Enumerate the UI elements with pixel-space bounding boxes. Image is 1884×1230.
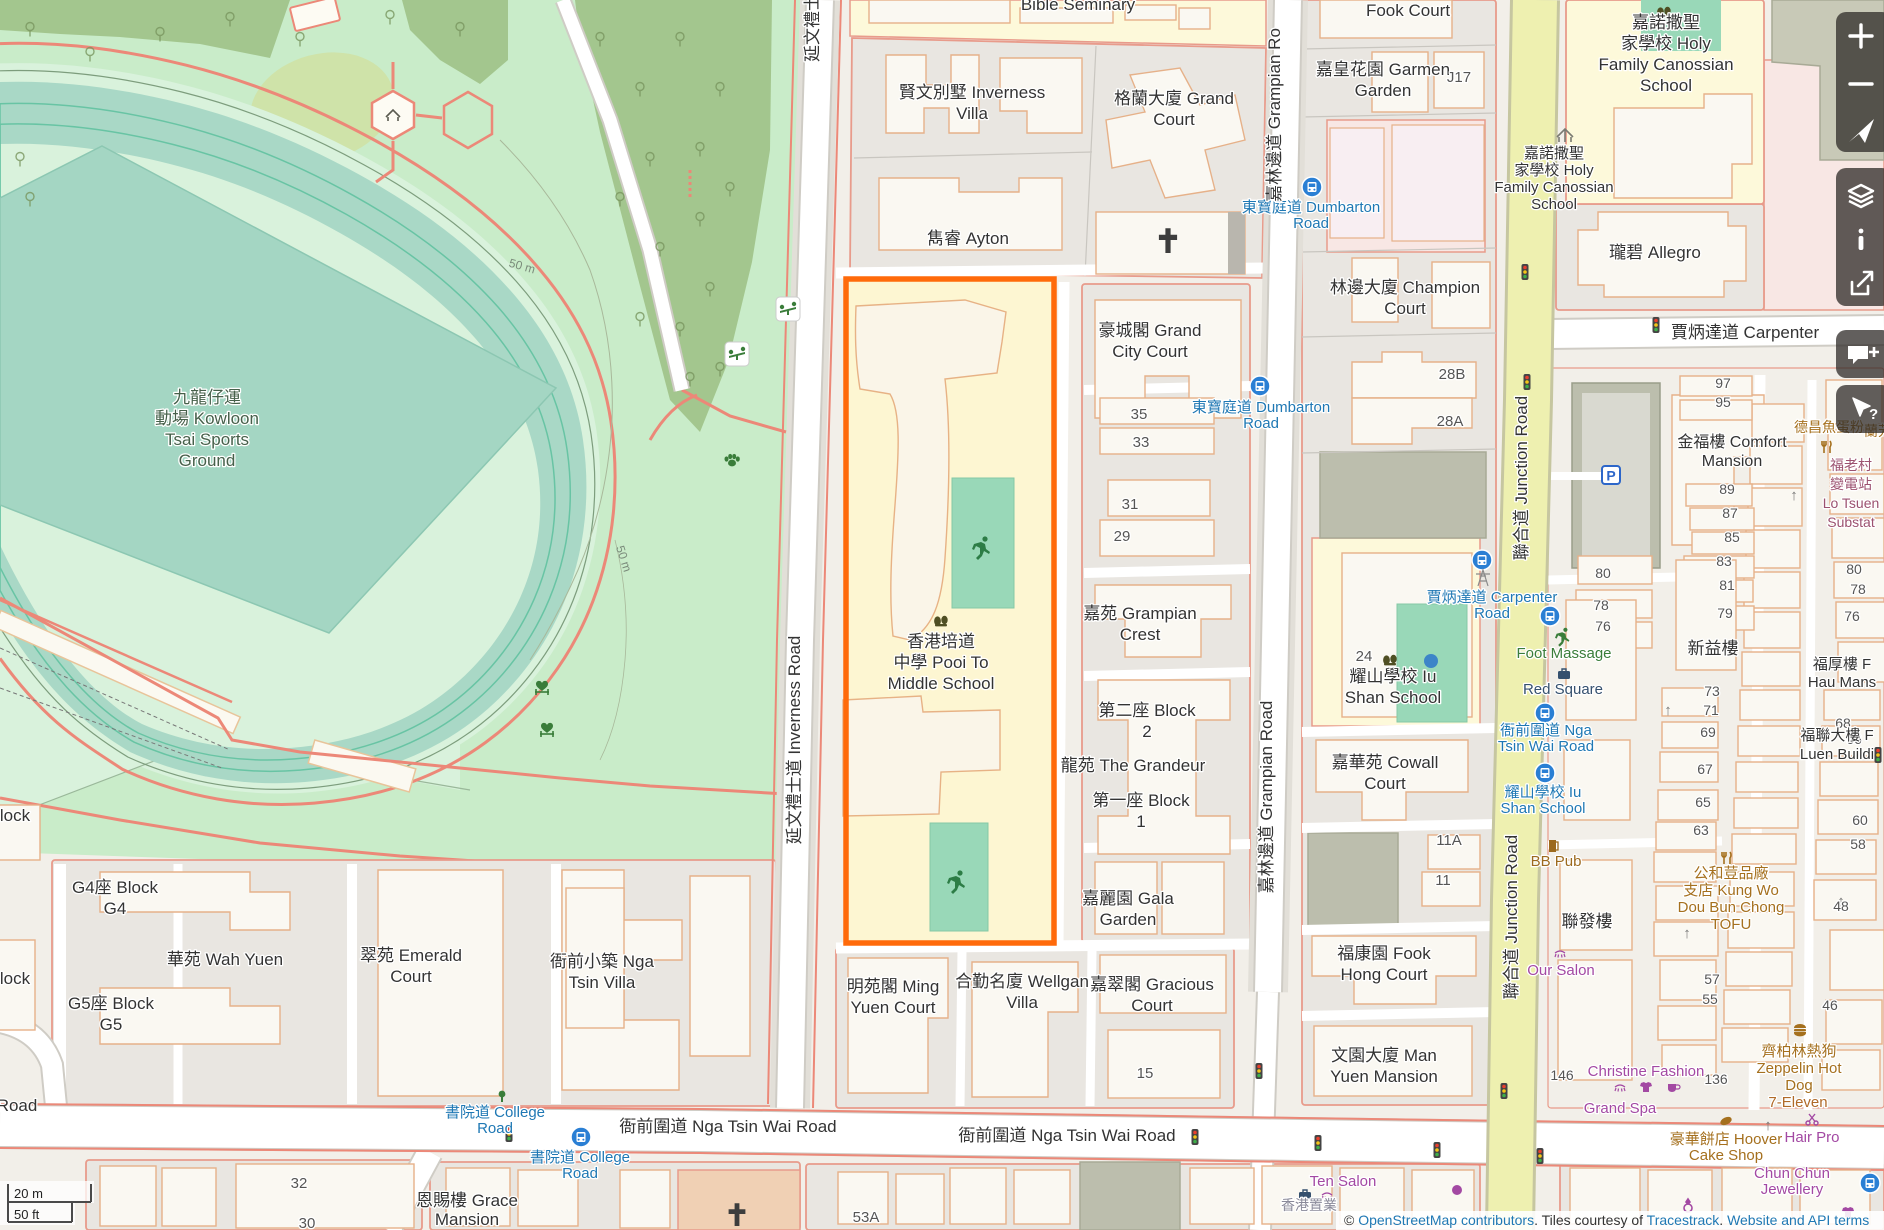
svg-text:賢文別墅 Inverness: 賢文別墅 Inverness xyxy=(899,83,1045,102)
svg-text:Ground: Ground xyxy=(179,451,236,470)
svg-text:Tsai Sports: Tsai Sports xyxy=(165,430,249,449)
svg-text:Tsin Wai Road: Tsin Wai Road xyxy=(1498,738,1594,755)
svg-text:58: 58 xyxy=(1850,836,1866,852)
svg-text:Court: Court xyxy=(1153,110,1195,129)
svg-text:明苑閣 Ming: 明苑閣 Ming xyxy=(847,977,940,996)
svg-text:嘉林邊道 Grampian Ro: 嘉林邊道 Grampian Ro xyxy=(1265,28,1284,202)
svg-text:Lo Tsuen: Lo Tsuen xyxy=(1823,495,1880,511)
svg-text:Family Canossian: Family Canossian xyxy=(1494,179,1613,196)
svg-text:78: 78 xyxy=(1593,597,1609,613)
svg-text:48: 48 xyxy=(1833,898,1849,914)
svg-text:136: 136 xyxy=(1704,1071,1728,1087)
svg-text:76: 76 xyxy=(1595,618,1611,634)
svg-text:69: 69 xyxy=(1700,724,1716,740)
svg-text:29: 29 xyxy=(1114,528,1131,545)
svg-text:97: 97 xyxy=(1715,375,1731,391)
svg-text:↑: ↑ xyxy=(1664,702,1672,719)
svg-text:73: 73 xyxy=(1704,683,1720,699)
svg-text:55: 55 xyxy=(1702,991,1718,1007)
svg-text:合勤名廈 Wellgan: 合勤名廈 Wellgan xyxy=(955,972,1089,991)
svg-text:32: 32 xyxy=(291,1175,308,1192)
svg-text:衙前小築 Nga: 衙前小築 Nga xyxy=(550,952,654,971)
svg-text:福康園 Fook: 福康園 Fook xyxy=(1337,944,1431,963)
svg-text:嘉林邊道 Grampian Road: 嘉林邊道 Grampian Road xyxy=(1257,701,1276,894)
svg-text:46: 46 xyxy=(1822,997,1838,1013)
svg-text:Road: Road xyxy=(1243,415,1279,432)
svg-text:賈炳達道 Carpenter: 賈炳達道 Carpenter xyxy=(1671,323,1820,342)
svg-text:Substat: Substat xyxy=(1827,514,1875,530)
svg-text:Our Salon: Our Salon xyxy=(1527,962,1595,979)
svg-text:G5座 Block: G5座 Block xyxy=(68,994,154,1013)
svg-text:Court: Court xyxy=(390,967,432,986)
svg-text:嘉諾撒聖: 嘉諾撒聖 xyxy=(1524,145,1584,162)
svg-text:Road: Road xyxy=(562,1165,598,1182)
svg-text:金福樓 Comfort: 金福樓 Comfort xyxy=(1677,433,1787,451)
svg-text:28A: 28A xyxy=(1437,413,1464,430)
svg-text:15: 15 xyxy=(1137,1065,1154,1082)
svg-text:嘉諾撒聖: 嘉諾撒聖 xyxy=(1632,13,1700,32)
svg-text:嘉翠閣 Gracious: 嘉翠閣 Gracious xyxy=(1090,975,1214,994)
svg-text:33: 33 xyxy=(1133,434,1150,451)
svg-text:香港置業: 香港置業 xyxy=(1281,1197,1337,1213)
svg-text:嘉麗園 Gala: 嘉麗園 Gala xyxy=(1082,889,1174,908)
svg-text:83: 83 xyxy=(1716,553,1732,569)
svg-text:文園大廈 Man: 文園大廈 Man xyxy=(1331,1046,1437,1065)
svg-text:嘉華苑 Cowall: 嘉華苑 Cowall xyxy=(1332,753,1439,772)
svg-text:Hau Mans: Hau Mans xyxy=(1808,674,1876,691)
svg-text:Crest: Crest xyxy=(1120,625,1161,644)
svg-text:香港培道: 香港培道 xyxy=(907,632,975,651)
svg-text:Bible Seminary: Bible Seminary xyxy=(1021,0,1136,14)
svg-text:79: 79 xyxy=(1717,605,1733,621)
svg-text:Red Square: Red Square xyxy=(1523,681,1603,698)
svg-text:Christine Fashion: Christine Fashion xyxy=(1588,1063,1705,1080)
svg-text:7-Eleven: 7-Eleven xyxy=(1768,1094,1827,1111)
svg-text:家學校 Holy: 家學校 Holy xyxy=(1621,34,1711,53)
svg-text:76: 76 xyxy=(1844,608,1860,624)
svg-text:20 m: 20 m xyxy=(14,1186,43,1201)
svg-text:35: 35 xyxy=(1131,406,1148,423)
svg-text:Court: Court xyxy=(1131,996,1173,1015)
svg-text:Court: Court xyxy=(1364,774,1406,793)
svg-text:中學 Pooi To: 中學 Pooi To xyxy=(893,653,988,672)
svg-text:聯合道 Junction Road: 聯合道 Junction Road xyxy=(1512,396,1531,560)
svg-text:華苑 Wah Yuen: 華苑 Wah Yuen xyxy=(167,950,283,969)
svg-text:Hong Court: Hong Court xyxy=(1341,965,1428,984)
svg-text:雋睿 Ayton: 雋睿 Ayton xyxy=(927,229,1009,248)
svg-text:新益樓: 新益樓 xyxy=(1688,639,1739,658)
svg-text:延文禮士: 延文禮士 xyxy=(803,0,822,62)
svg-text:賈炳達道 Carpenter: 賈炳達道 Carpenter xyxy=(1427,589,1558,606)
svg-text:↑: ↑ xyxy=(1790,487,1798,504)
svg-text:28B: 28B xyxy=(1439,366,1466,383)
svg-text:第二座 Block: 第二座 Block xyxy=(1098,701,1196,720)
svg-text:豪華餅店 Hoover: 豪華餅店 Hoover xyxy=(1670,1130,1783,1148)
svg-text:57: 57 xyxy=(1704,971,1720,987)
svg-text:87: 87 xyxy=(1722,505,1738,521)
svg-text:東寶庭道 Dumbarton: 東寶庭道 Dumbarton xyxy=(1242,198,1380,216)
svg-text:J17: J17 xyxy=(1447,69,1471,86)
svg-text:65: 65 xyxy=(1695,794,1711,810)
svg-text:Yuen Court: Yuen Court xyxy=(850,998,935,1017)
svg-text:© OpenStreetMap contributors.: © OpenStreetMap contributors. Tiles cour… xyxy=(1344,1212,1869,1228)
svg-text:林邊大廈 Champion: 林邊大廈 Champion xyxy=(1330,278,1480,297)
svg-text:Shan School: Shan School xyxy=(1345,688,1441,707)
svg-text:City Court: City Court xyxy=(1112,342,1188,361)
svg-text:福聯大樓 F: 福聯大樓 F xyxy=(1800,727,1873,744)
svg-text:Luen Buildi: Luen Buildi xyxy=(1800,746,1874,763)
svg-text:Fook Court: Fook Court xyxy=(1366,1,1450,20)
svg-text:龍苑 The Grandeur: 龍苑 The Grandeur xyxy=(1061,756,1206,775)
svg-text:Dou Bun Chong: Dou Bun Chong xyxy=(1678,899,1785,916)
svg-text:BB Pub: BB Pub xyxy=(1531,853,1582,870)
svg-text:Middle School: Middle School xyxy=(888,674,995,693)
svg-text:P: P xyxy=(1606,468,1615,484)
svg-text:Mansion: Mansion xyxy=(435,1210,499,1229)
svg-text:福老村: 福老村 xyxy=(1830,457,1872,473)
svg-text:Chun Chun: Chun Chun xyxy=(1754,1165,1830,1182)
svg-text:53A: 53A xyxy=(853,1209,880,1226)
svg-text:Zeppelin Hot: Zeppelin Hot xyxy=(1756,1060,1842,1077)
svg-text:85: 85 xyxy=(1724,529,1740,545)
svg-text:Dog: Dog xyxy=(1785,1077,1813,1094)
svg-text:Villa: Villa xyxy=(956,104,988,123)
svg-text:G5: G5 xyxy=(100,1015,123,1034)
svg-text:67: 67 xyxy=(1697,761,1713,777)
svg-text:東寶庭道 Dumbarton: 東寶庭道 Dumbarton xyxy=(1192,398,1330,416)
svg-text:50 ft: 50 ft xyxy=(14,1207,40,1222)
svg-text:24: 24 xyxy=(1356,648,1373,665)
svg-text:Road: Road xyxy=(0,1096,37,1115)
svg-text:耀山學校 Iu: 耀山學校 Iu xyxy=(1350,667,1437,686)
svg-text:lock: lock xyxy=(0,969,31,988)
svg-text:格蘭大廈 Grand: 格蘭大廈 Grand xyxy=(1114,89,1234,108)
svg-text:lock: lock xyxy=(0,806,31,825)
svg-text:Road: Road xyxy=(1474,605,1510,622)
svg-text:衙前圍道 Nga: 衙前圍道 Nga xyxy=(1500,722,1592,739)
svg-text:Mansion: Mansion xyxy=(1702,453,1762,470)
svg-text:↑: ↑ xyxy=(1683,925,1691,942)
svg-text:81: 81 xyxy=(1719,577,1735,593)
svg-text:95: 95 xyxy=(1715,394,1731,410)
svg-text:1: 1 xyxy=(1136,812,1145,831)
svg-text:Grand Spa: Grand Spa xyxy=(1584,1100,1657,1117)
svg-text:Garden: Garden xyxy=(1100,910,1157,929)
svg-text:動場 Kowloon: 動場 Kowloon xyxy=(155,409,259,428)
svg-text:Foot Massage: Foot Massage xyxy=(1516,645,1611,662)
svg-text:80: 80 xyxy=(1595,565,1611,581)
svg-text:146: 146 xyxy=(1550,1067,1574,1083)
svg-text:瓏碧 Allegro: 瓏碧 Allegro xyxy=(1609,243,1701,262)
svg-text:書院道 College: 書院道 College xyxy=(530,1148,630,1166)
svg-text:Hair Pro: Hair Pro xyxy=(1784,1129,1839,1146)
svg-text:Court: Court xyxy=(1384,299,1426,318)
svg-text:80: 80 xyxy=(1846,561,1862,577)
svg-text:聯合道 Junction Road: 聯合道 Junction Road xyxy=(1502,835,1521,999)
svg-text:Jewellery: Jewellery xyxy=(1761,1181,1824,1198)
svg-text:Garden: Garden xyxy=(1355,81,1412,100)
svg-text:Cake Shop: Cake Shop xyxy=(1689,1147,1763,1164)
svg-text:60: 60 xyxy=(1852,812,1868,828)
svg-text:Tsin Villa: Tsin Villa xyxy=(569,973,636,992)
svg-text:豪城閣 Grand: 豪城閣 Grand xyxy=(1099,320,1202,340)
svg-text:G4座 Block: G4座 Block xyxy=(72,878,158,897)
svg-text:書院道 College: 書院道 College xyxy=(445,1103,545,1121)
svg-text:31: 31 xyxy=(1122,496,1139,513)
svg-text:Family Canossian: Family Canossian xyxy=(1598,55,1733,74)
svg-text:齊柏林熱狗: 齊柏林熱狗 xyxy=(1761,1042,1836,1060)
svg-text:Villa: Villa xyxy=(1006,993,1038,1012)
svg-text:支店 Kung Wo: 支店 Kung Wo xyxy=(1683,882,1779,899)
svg-text:2: 2 xyxy=(1142,722,1151,741)
svg-text:第一座 Block: 第一座 Block xyxy=(1092,791,1190,810)
svg-text:嘉苑 Grampian: 嘉苑 Grampian xyxy=(1083,604,1196,623)
svg-text:衙前圍道 Nga Tsin Wai Road: 衙前圍道 Nga Tsin Wai Road xyxy=(958,1126,1175,1145)
svg-text:78: 78 xyxy=(1850,581,1866,597)
svg-text:九龍仔運: 九龍仔運 xyxy=(173,388,241,407)
svg-text:延文禮士道 Inverness Road: 延文禮士道 Inverness Road xyxy=(785,636,804,845)
svg-text:福厚樓 F: 福厚樓 F xyxy=(1813,656,1871,673)
svg-text:89: 89 xyxy=(1719,481,1735,497)
svg-text:恩賜樓 Grace: 恩賜樓 Grace xyxy=(416,1191,518,1210)
svg-text:翠苑 Emerald: 翠苑 Emerald xyxy=(360,946,462,965)
svg-text:TOFU: TOFU xyxy=(1711,916,1752,933)
svg-text:71: 71 xyxy=(1703,702,1719,718)
svg-text:耀山學校 Iu: 耀山學校 Iu xyxy=(1505,783,1582,801)
svg-text:?: ? xyxy=(1869,406,1878,423)
svg-text:Road: Road xyxy=(477,1120,513,1137)
svg-text:School: School xyxy=(1531,196,1577,213)
svg-text:63: 63 xyxy=(1693,822,1709,838)
svg-text:Shan School: Shan School xyxy=(1500,800,1585,817)
svg-text:11A: 11A xyxy=(1436,832,1462,849)
svg-text:30: 30 xyxy=(299,1215,316,1230)
svg-text:嘉皇花園 Garmen: 嘉皇花園 Garmen xyxy=(1316,60,1450,79)
svg-text:家學校 Holy: 家學校 Holy xyxy=(1514,161,1594,179)
svg-text:11: 11 xyxy=(1435,872,1451,889)
svg-text:聯發樓: 聯發樓 xyxy=(1562,912,1613,931)
svg-text:Yuen Mansion: Yuen Mansion xyxy=(1330,1067,1438,1086)
svg-text:G4: G4 xyxy=(104,899,127,918)
svg-text:變電站: 變電站 xyxy=(1830,476,1872,492)
svg-text:Road: Road xyxy=(1293,215,1329,232)
svg-text:公和荳品廠: 公和荳品廠 xyxy=(1693,864,1768,882)
svg-text:Ten Salon: Ten Salon xyxy=(1310,1173,1377,1190)
svg-text:衙前圍道 Nga Tsin Wai Road: 衙前圍道 Nga Tsin Wai Road xyxy=(619,1117,836,1136)
svg-text:School: School xyxy=(1640,76,1692,95)
